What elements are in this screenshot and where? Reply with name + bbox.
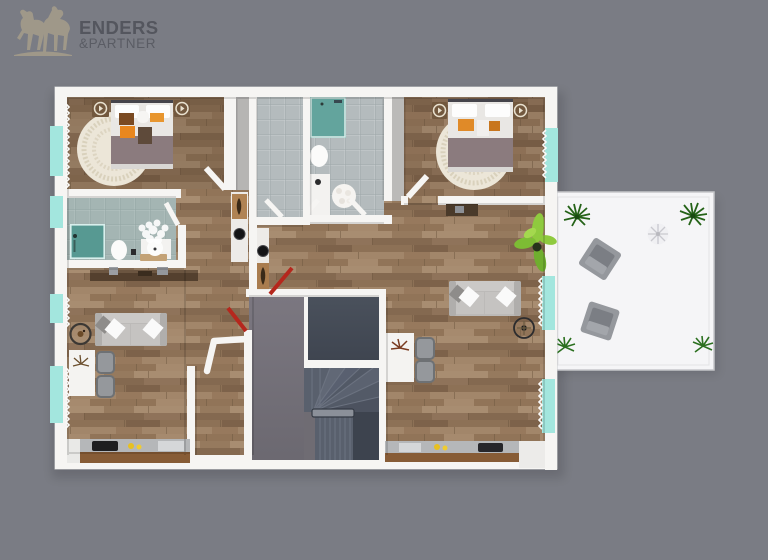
svg-text:&PARTNER: &PARTNER (79, 36, 156, 51)
svg-text:ENDERS: ENDERS (79, 17, 159, 38)
